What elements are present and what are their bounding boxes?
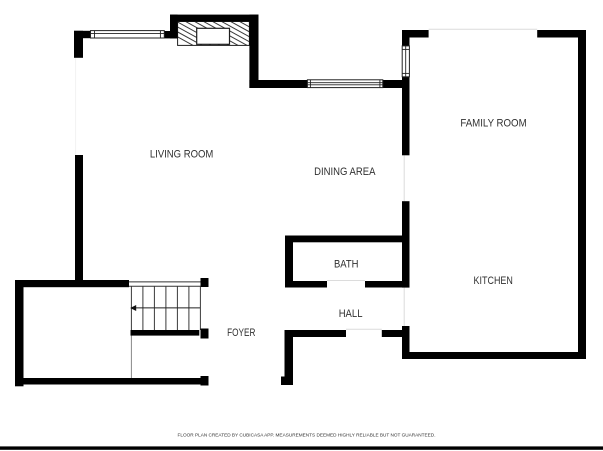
- svg-text:BATH: BATH: [334, 259, 359, 271]
- svg-text:LIVING ROOM: LIVING ROOM: [150, 148, 213, 160]
- svg-text:HALL: HALL: [339, 308, 363, 320]
- svg-text:FOYER: FOYER: [227, 327, 255, 339]
- svg-text:FAMILY ROOM: FAMILY ROOM: [460, 118, 526, 130]
- svg-text:KITCHEN: KITCHEN: [474, 275, 513, 287]
- svg-text:DINING AREA: DINING AREA: [314, 166, 376, 178]
- svg-text:FLOOR PLAN CREATED BY CUBICASA: FLOOR PLAN CREATED BY CUBICASA APP. MEAS…: [178, 433, 436, 438]
